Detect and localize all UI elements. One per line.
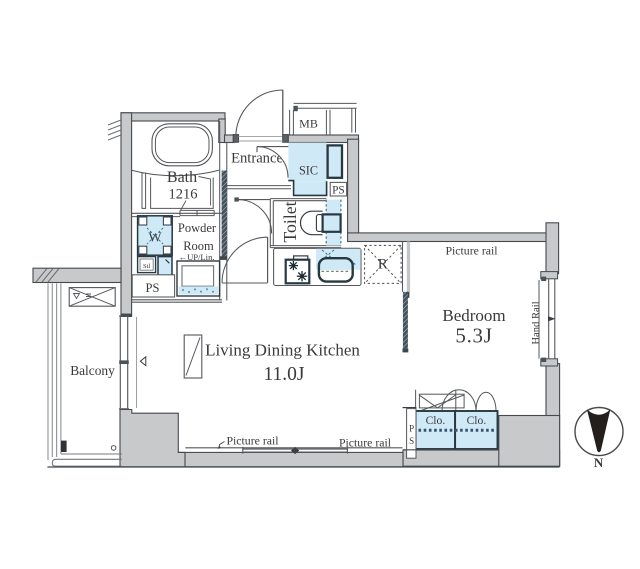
svg-text:Clo.: Clo. — [426, 414, 446, 427]
svg-text:SIC: SIC — [299, 163, 318, 177]
svg-text:S: S — [409, 436, 414, 446]
svg-text:Stl: Stl — [143, 263, 150, 270]
svg-text:←UP/Lin.: ←UP/Lin. — [178, 252, 214, 262]
svg-text:PS: PS — [332, 184, 345, 196]
svg-text:5.3J: 5.3J — [455, 323, 492, 347]
svg-text:Picture rail: Picture rail — [445, 243, 498, 257]
svg-text:Living Dining Kitchen: Living Dining Kitchen — [205, 341, 360, 360]
svg-text:Bath: Bath — [167, 169, 197, 186]
svg-text:R: R — [378, 257, 388, 273]
svg-text:Toilet: Toilet — [280, 201, 300, 242]
svg-text:11.0J: 11.0J — [264, 364, 305, 385]
svg-text:Balcony: Balcony — [70, 363, 115, 378]
svg-text:Room: Room — [183, 239, 214, 253]
svg-text:PS: PS — [146, 281, 160, 295]
svg-text:Bedroom: Bedroom — [442, 306, 505, 325]
svg-text:MB: MB — [299, 116, 318, 130]
svg-text:N: N — [594, 455, 604, 470]
svg-text:P: P — [409, 424, 414, 434]
svg-text:1216: 1216 — [169, 186, 198, 202]
svg-text:Hand Rail: Hand Rail — [531, 301, 542, 344]
svg-text:W: W — [148, 231, 162, 246]
svg-text:Clo.: Clo. — [467, 414, 487, 427]
svg-text:Picture rail: Picture rail — [226, 434, 279, 448]
svg-text:Powder: Powder — [178, 221, 217, 235]
svg-text:Picture rail: Picture rail — [339, 435, 392, 449]
